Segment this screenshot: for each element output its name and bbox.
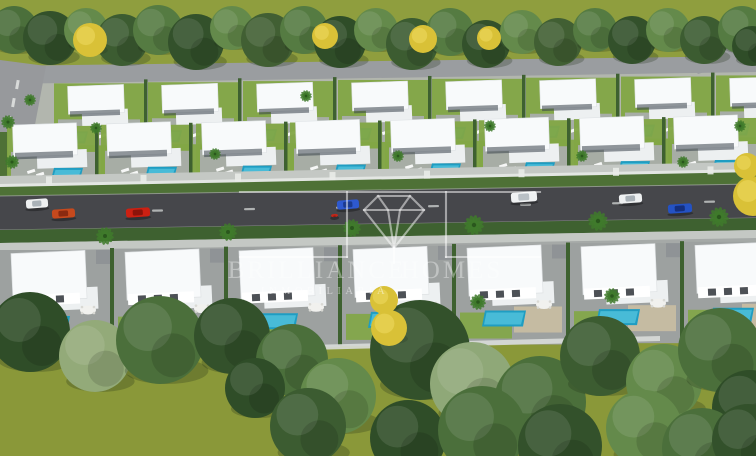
car: [51, 208, 77, 222]
lane-dash: [704, 201, 715, 203]
gate-pillar: [235, 173, 241, 181]
gate-pillar: [424, 171, 430, 179]
lane-dash: [428, 205, 439, 207]
aerial-development-render: BRILLIANCE HOMES INMOBILIARIA: [0, 0, 756, 456]
gate-pillar: [708, 166, 714, 174]
car: [618, 193, 644, 207]
gate-pillar: [519, 169, 525, 177]
villa-front-row: [385, 118, 477, 175]
gate-pillar: [613, 168, 619, 176]
villa-front-row: [7, 123, 99, 180]
lane-dash: [244, 208, 255, 210]
car: [25, 198, 50, 212]
watermark-subtitle: INMOBILIARIA: [261, 286, 389, 297]
villa-front-row: [290, 119, 382, 176]
watermark-brand-left: BRILLIANCE: [228, 257, 407, 284]
villa-front-row: [196, 121, 288, 178]
watermark-brand-right: HOMES: [401, 257, 504, 284]
gate-pillar: [141, 175, 147, 183]
lane-dash: [152, 209, 163, 211]
gate-pillar: [46, 176, 52, 184]
render-image: BRILLIANCE HOMES INMOBILIARIA: [0, 0, 756, 456]
car: [336, 199, 361, 213]
car: [510, 191, 539, 206]
gate-pillar: [330, 172, 336, 180]
villa-roof: [730, 76, 756, 106]
villa-front-row: [101, 122, 193, 179]
